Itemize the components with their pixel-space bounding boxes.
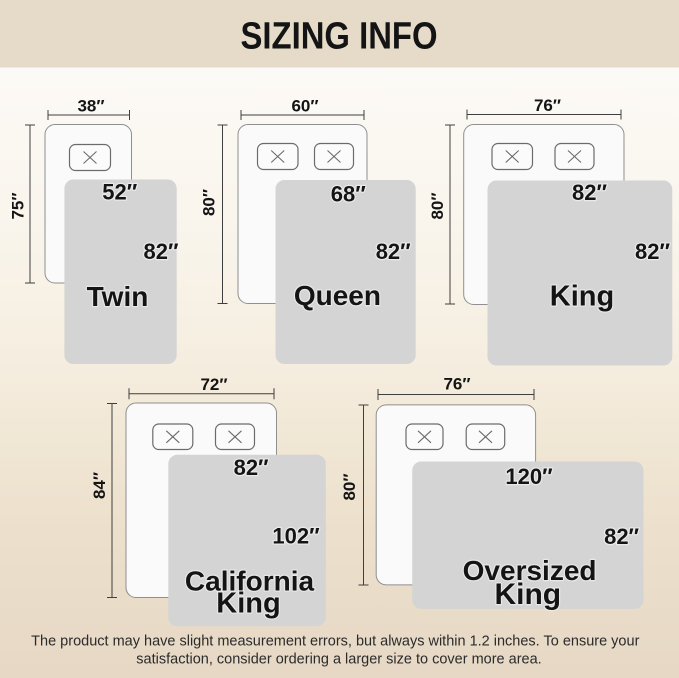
svg-text:120″: 120″ <box>505 464 553 489</box>
svg-text:The product may have slight me: The product may have slight measurement … <box>31 634 639 650</box>
svg-text:SIZING INFO: SIZING INFO <box>241 16 438 58</box>
svg-text:72″: 72″ <box>200 375 227 394</box>
svg-text:Twin: Twin <box>87 281 149 312</box>
svg-text:80″: 80″ <box>428 192 447 219</box>
svg-text:76″: 76″ <box>443 375 470 394</box>
svg-text:102″: 102″ <box>272 524 320 549</box>
svg-text:52″: 52″ <box>102 180 137 205</box>
svg-text:80″: 80″ <box>340 473 359 500</box>
svg-text:82″: 82″ <box>635 239 670 264</box>
svg-text:68″: 68″ <box>331 182 366 207</box>
svg-text:Queen: Queen <box>294 280 381 311</box>
svg-text:King: King <box>550 281 614 313</box>
svg-text:82″: 82″ <box>143 239 178 264</box>
svg-text:38″: 38″ <box>77 97 104 116</box>
svg-text:82″: 82″ <box>572 180 607 205</box>
svg-text:80″: 80″ <box>200 189 219 216</box>
svg-text:75″: 75″ <box>9 192 28 219</box>
svg-text:82″: 82″ <box>376 239 411 264</box>
svg-text:76″: 76″ <box>534 96 561 115</box>
svg-text:King: King <box>494 578 561 611</box>
svg-text:satisfaction, consider orderin: satisfaction, consider ordering a larger… <box>136 652 541 668</box>
svg-text:82″: 82″ <box>234 455 269 480</box>
svg-text:84″: 84″ <box>90 472 109 499</box>
svg-text:King: King <box>216 587 280 619</box>
svg-text:60″: 60″ <box>291 97 318 116</box>
svg-text:82″: 82″ <box>604 524 639 549</box>
